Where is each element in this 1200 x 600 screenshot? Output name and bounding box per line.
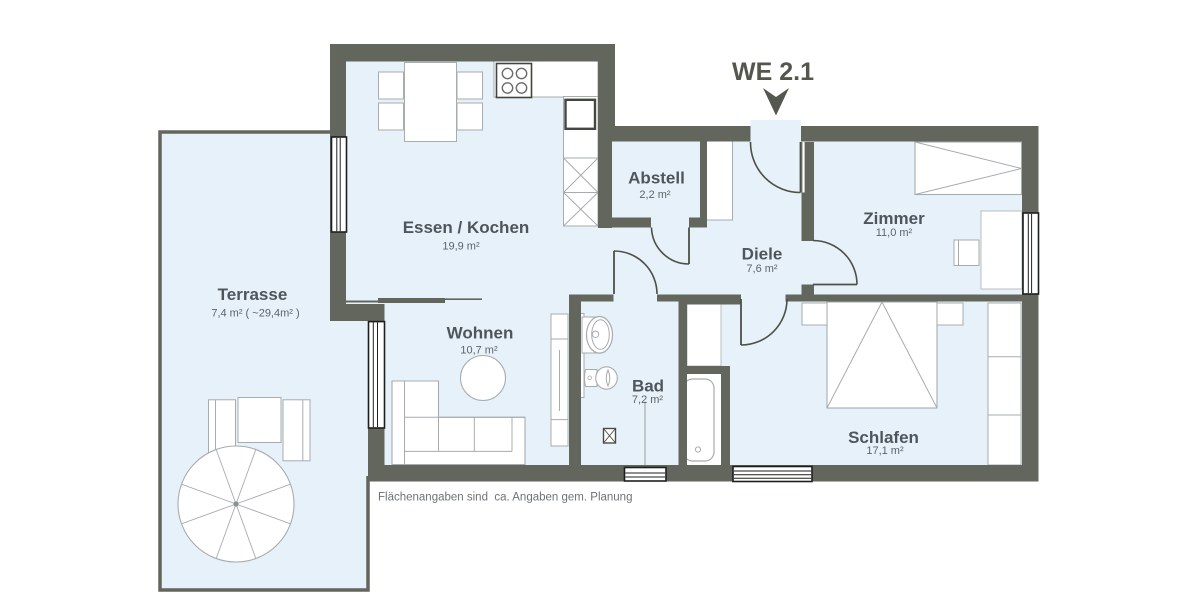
svg-text:Essen / Kochen: Essen / Kochen	[403, 218, 530, 237]
svg-text:Terrasse: Terrasse	[218, 285, 288, 304]
svg-text:11,0 m²: 11,0 m²	[876, 227, 913, 239]
svg-text:Zimmer: Zimmer	[863, 209, 925, 228]
svg-text:17,1 m²: 17,1 m²	[866, 445, 904, 457]
svg-text:2,2 m²: 2,2 m²	[639, 189, 671, 201]
svg-text:7,2 m²: 7,2 m²	[632, 394, 664, 406]
svg-text:19,9 m²: 19,9 m²	[442, 240, 480, 252]
svg-text:Bad: Bad	[632, 377, 664, 396]
svg-text:Flächenangaben sind ca. Angab: Flächenangaben sind ca. Angaben gem. Pla…	[378, 492, 632, 504]
svg-text:7,6 m²: 7,6 m²	[746, 263, 778, 275]
svg-text:7,4 m² ( ~29,4m² ): 7,4 m² ( ~29,4m² )	[211, 307, 299, 319]
svg-text:Abstell: Abstell	[628, 169, 685, 188]
svg-text:Diele: Diele	[742, 245, 783, 264]
svg-text:10,7 m²: 10,7 m²	[460, 345, 498, 357]
svg-text:WE 2.1: WE 2.1	[732, 58, 814, 86]
svg-text:Wohnen: Wohnen	[447, 324, 514, 343]
